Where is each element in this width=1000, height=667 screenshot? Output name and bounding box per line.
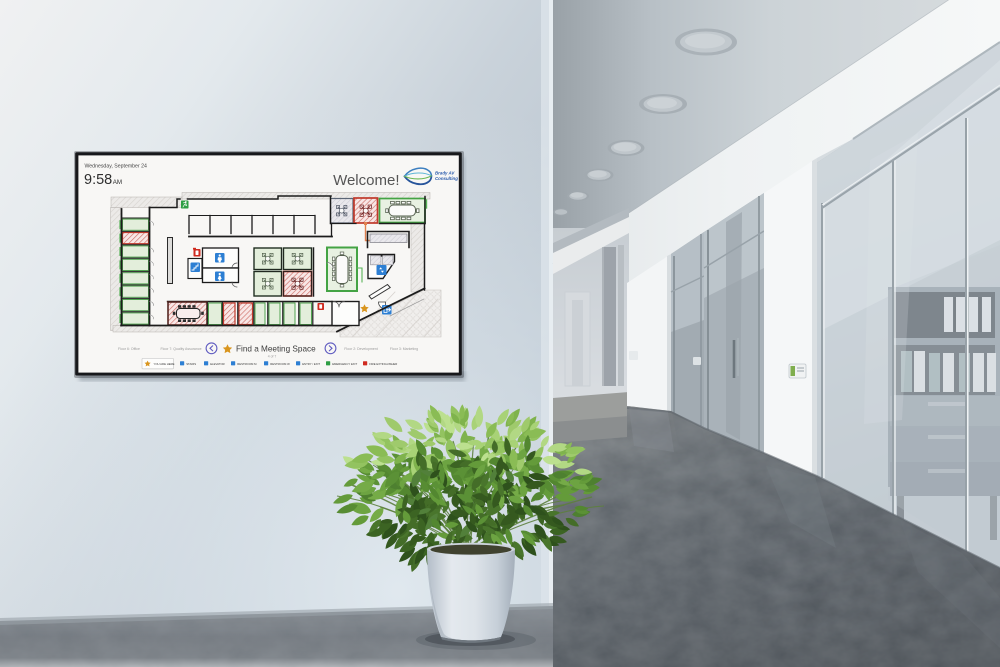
svg-text:Floor 2: Development: Floor 2: Development	[344, 347, 377, 351]
svg-text:EMERGENCY EXIT: EMERGENCY EXIT	[332, 362, 357, 366]
svg-text:YOU ARE HERE: YOU ARE HERE	[154, 362, 175, 366]
svg-text:Welcome!: Welcome!	[333, 172, 399, 189]
svg-text:FIRE EXTINGUISHER: FIRE EXTINGUISHER	[369, 362, 397, 366]
svg-text:Consulting: Consulting	[435, 176, 458, 181]
svg-text:4 of 7: 4 of 7	[268, 355, 277, 359]
svg-text:Floor 6: Office: Floor 6: Office	[118, 347, 140, 351]
svg-text:Floor 3: Marketing: Floor 3: Marketing	[390, 347, 418, 351]
svg-text:Floor 7: Quality Assurance: Floor 7: Quality Assurance	[160, 347, 201, 351]
svg-text:RESTROOM W: RESTROOM W	[270, 362, 290, 366]
svg-text:ENTRY / EXIT: ENTRY / EXIT	[302, 362, 320, 366]
svg-text:Wednesday, September 24: Wednesday, September 24	[85, 164, 147, 170]
svg-text:RESTROOM M: RESTROOM M	[237, 362, 257, 366]
svg-text:ELEVATOR: ELEVATOR	[210, 362, 224, 366]
svg-text:STAIRS: STAIRS	[186, 362, 196, 366]
svg-text:Brady AV: Brady AV	[435, 171, 455, 176]
svg-text:Find a Meeting Space: Find a Meeting Space	[236, 345, 316, 354]
